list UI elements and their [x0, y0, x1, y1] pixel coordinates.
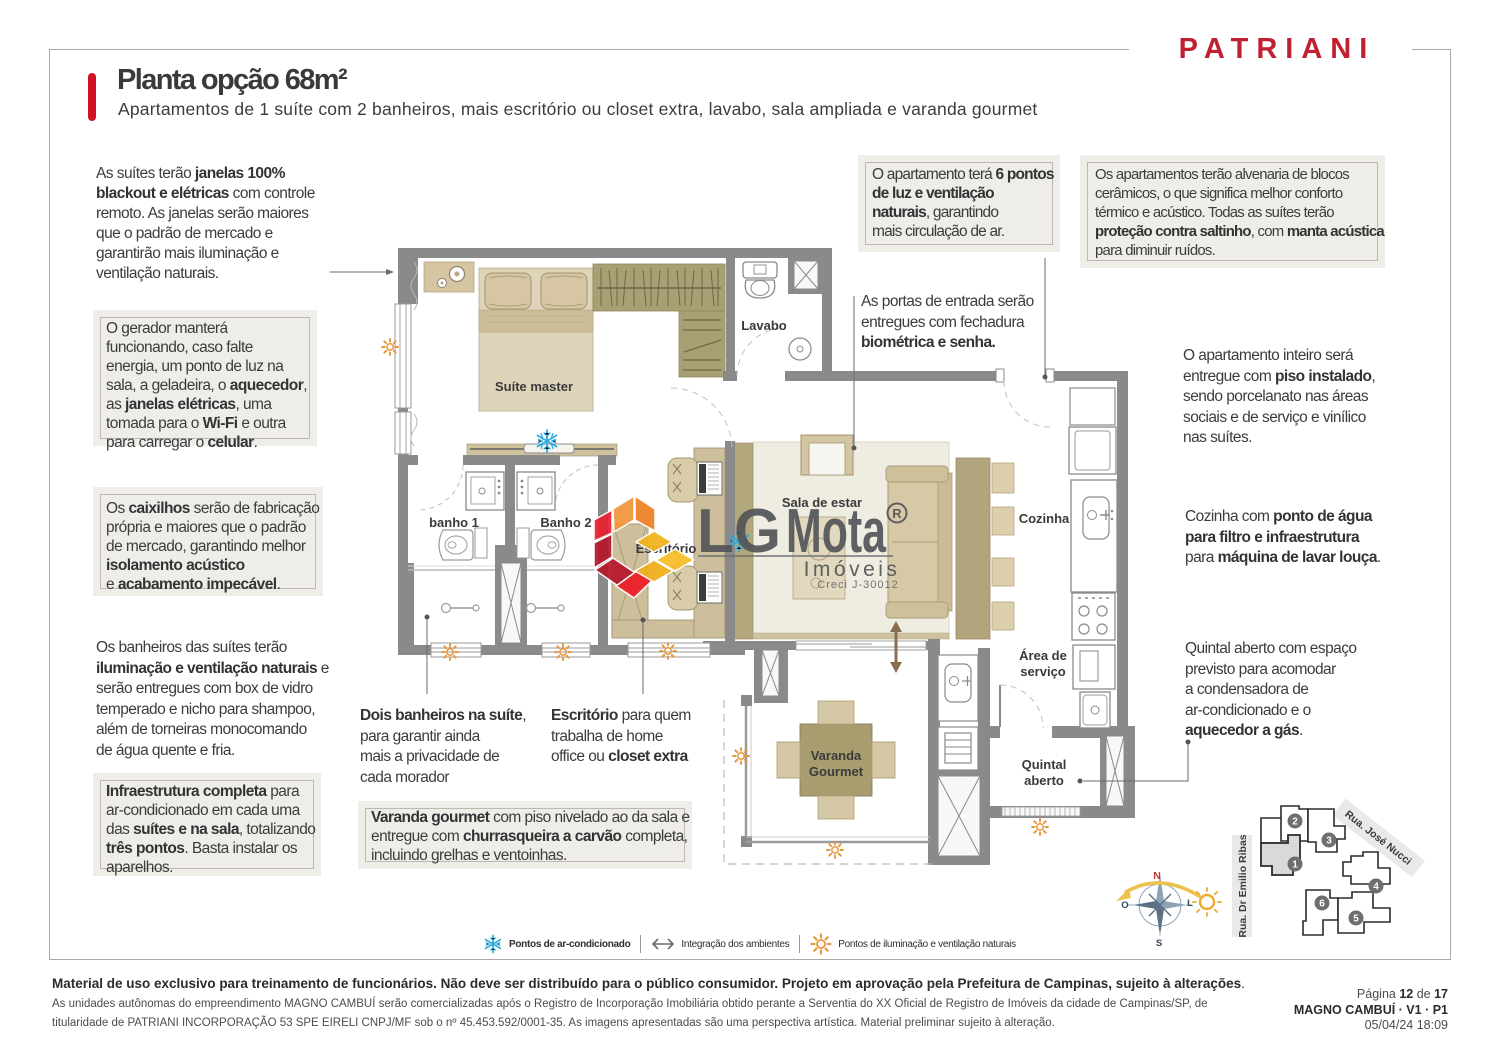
svg-text:serviço: serviço: [1020, 664, 1066, 679]
svg-text:S: S: [1156, 938, 1162, 949]
svg-text:Quintal: Quintal: [1022, 757, 1067, 772]
svg-text:N: N: [1153, 870, 1161, 882]
svg-text:Área de: Área de: [1019, 648, 1067, 663]
svg-text:Imóveis: Imóveis: [804, 558, 901, 581]
svg-text:R: R: [892, 506, 902, 521]
svg-text:1: 1: [1292, 860, 1298, 871]
svg-text:Cozinha: Cozinha: [1019, 511, 1070, 526]
svg-text:aberto: aberto: [1024, 773, 1064, 788]
svg-text:5: 5: [1353, 914, 1359, 925]
svg-text:Lavabo: Lavabo: [741, 318, 787, 333]
svg-text:6: 6: [1319, 899, 1325, 910]
svg-text:Banho 2: Banho 2: [540, 515, 591, 530]
svg-text:3: 3: [1326, 836, 1332, 847]
svg-text:banho 1: banho 1: [429, 515, 479, 530]
svg-text:Rua. Dr Emilio Ribas: Rua. Dr Emilio Ribas: [1237, 834, 1249, 937]
svg-text:Creci J-30012: Creci J-30012: [817, 579, 898, 591]
svg-text:2: 2: [1292, 817, 1298, 828]
svg-text:Suíte master: Suíte master: [495, 379, 573, 394]
svg-text:L: L: [1187, 898, 1193, 909]
svg-text:Gourmet: Gourmet: [809, 764, 864, 779]
svg-text:O: O: [1121, 900, 1128, 911]
svg-text:Varanda: Varanda: [811, 748, 862, 763]
svg-text:4: 4: [1373, 882, 1379, 893]
